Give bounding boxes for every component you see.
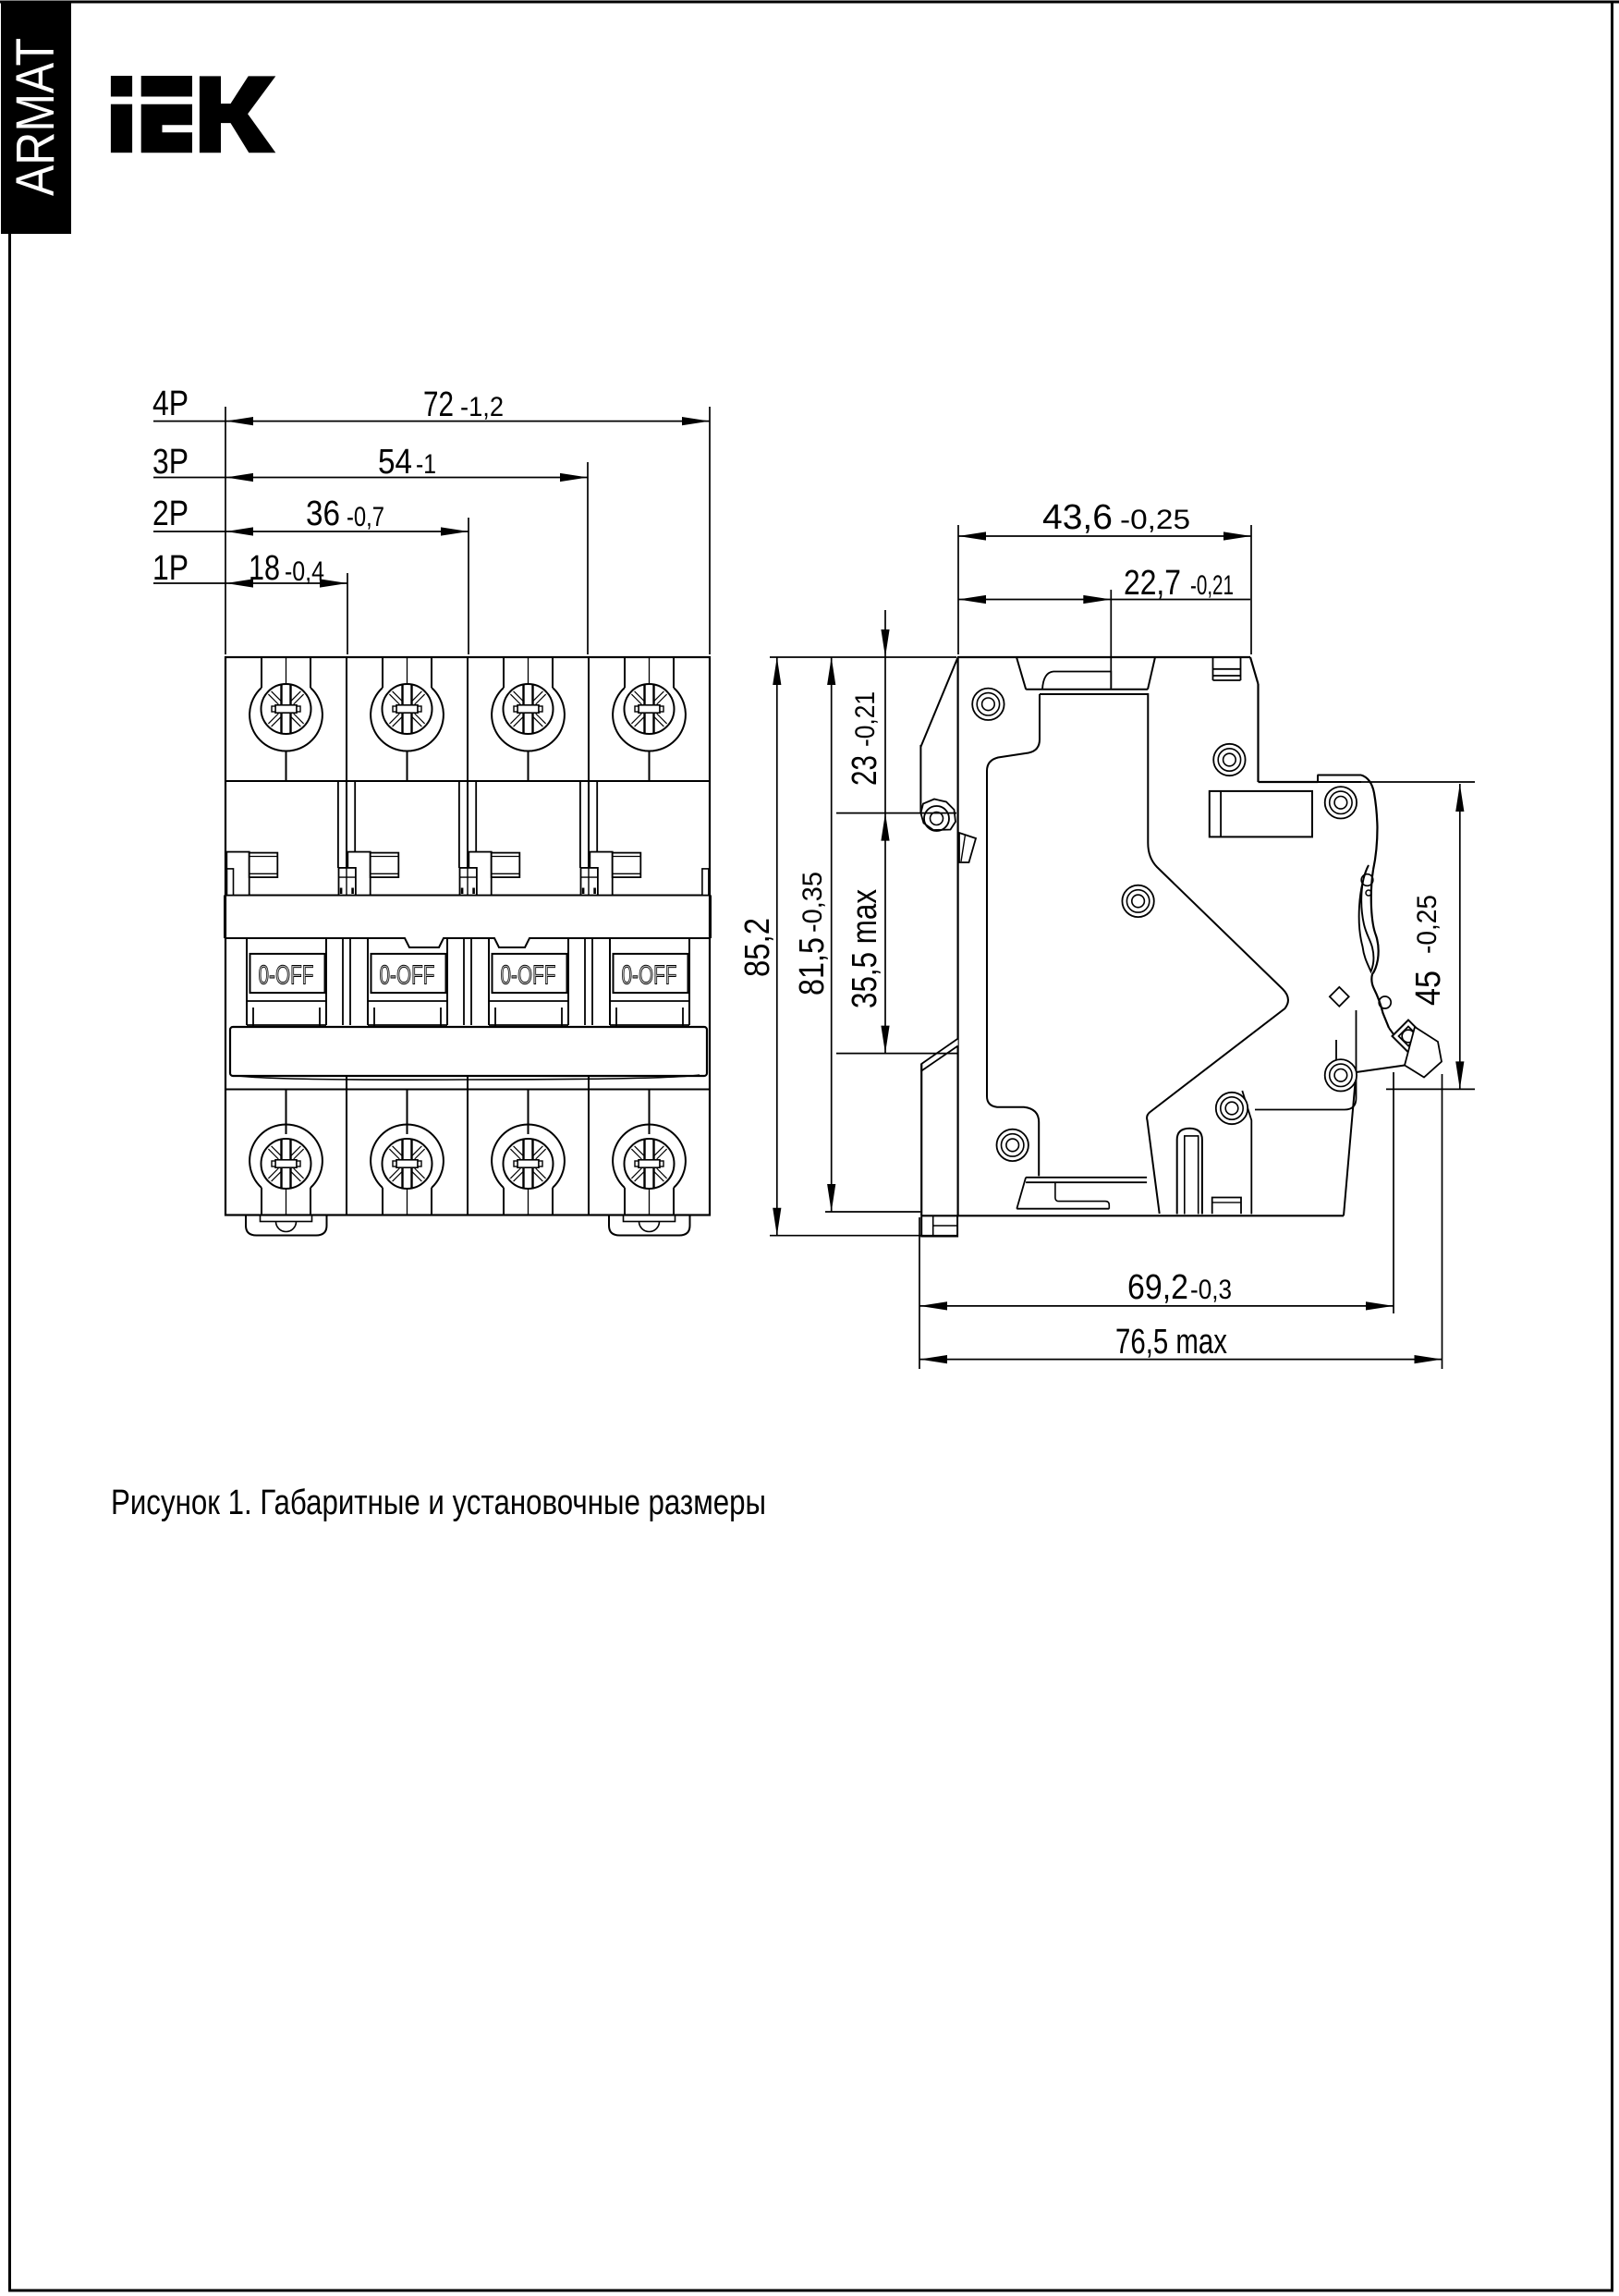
svg-text:-1,2: -1,2 xyxy=(460,392,504,422)
svg-text:43,6: 43,6 xyxy=(1042,498,1113,537)
svg-text:-0,25: -0,25 xyxy=(1120,505,1190,535)
svg-text:-0,25: -0,25 xyxy=(1412,895,1442,954)
svg-text:72: 72 xyxy=(423,385,454,424)
svg-text:3P: 3P xyxy=(152,443,189,482)
svg-text:85,2: 85,2 xyxy=(738,918,777,977)
svg-text:0-OFF: 0-OFF xyxy=(501,961,556,991)
svg-text:1P: 1P xyxy=(152,549,189,588)
svg-text:22,7: 22,7 xyxy=(1124,564,1181,603)
svg-text:69,2: 69,2 xyxy=(1127,1268,1188,1307)
svg-text:4P: 4P xyxy=(152,385,189,423)
svg-text:-0,7: -0,7 xyxy=(347,502,384,532)
svg-text:23: 23 xyxy=(846,755,884,786)
svg-text:36: 36 xyxy=(306,495,340,533)
svg-text:54: 54 xyxy=(378,443,412,482)
svg-text:0-OFF: 0-OFF xyxy=(259,961,314,991)
svg-text:76,5 max: 76,5 max xyxy=(1115,1323,1227,1362)
svg-text:18: 18 xyxy=(249,549,280,588)
svg-text:-0,21: -0,21 xyxy=(850,691,881,747)
svg-text:-0,4: -0,4 xyxy=(285,556,324,587)
svg-text:45: 45 xyxy=(1409,971,1448,1006)
svg-text:Рисунок 1. Габаритные и устано: Рисунок 1. Габаритные и установочные раз… xyxy=(111,1484,766,1522)
svg-text:81,5: 81,5 xyxy=(793,937,832,995)
svg-text:-0,21: -0,21 xyxy=(1190,570,1234,601)
svg-text:-1: -1 xyxy=(416,449,436,480)
svg-text:-0,3: -0,3 xyxy=(1190,1275,1232,1305)
svg-text:0-OFF: 0-OFF xyxy=(380,961,435,991)
svg-text:-0,35: -0,35 xyxy=(797,872,828,933)
svg-text:35,5 max: 35,5 max xyxy=(846,889,884,1008)
svg-text:ARMAT: ARMAT xyxy=(6,38,66,196)
svg-text:2P: 2P xyxy=(152,495,189,533)
svg-text:0-OFF: 0-OFF xyxy=(622,961,677,991)
